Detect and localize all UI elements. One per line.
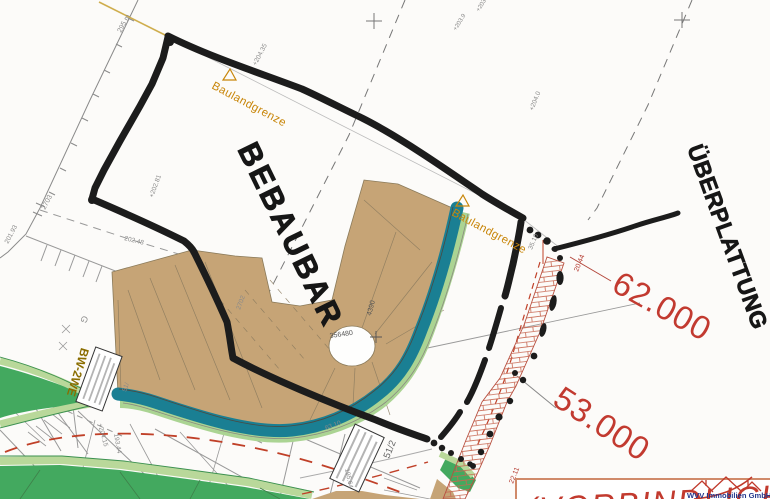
svg-text:WVV Immobilien GmbH: WVV Immobilien GmbH [687,491,770,499]
